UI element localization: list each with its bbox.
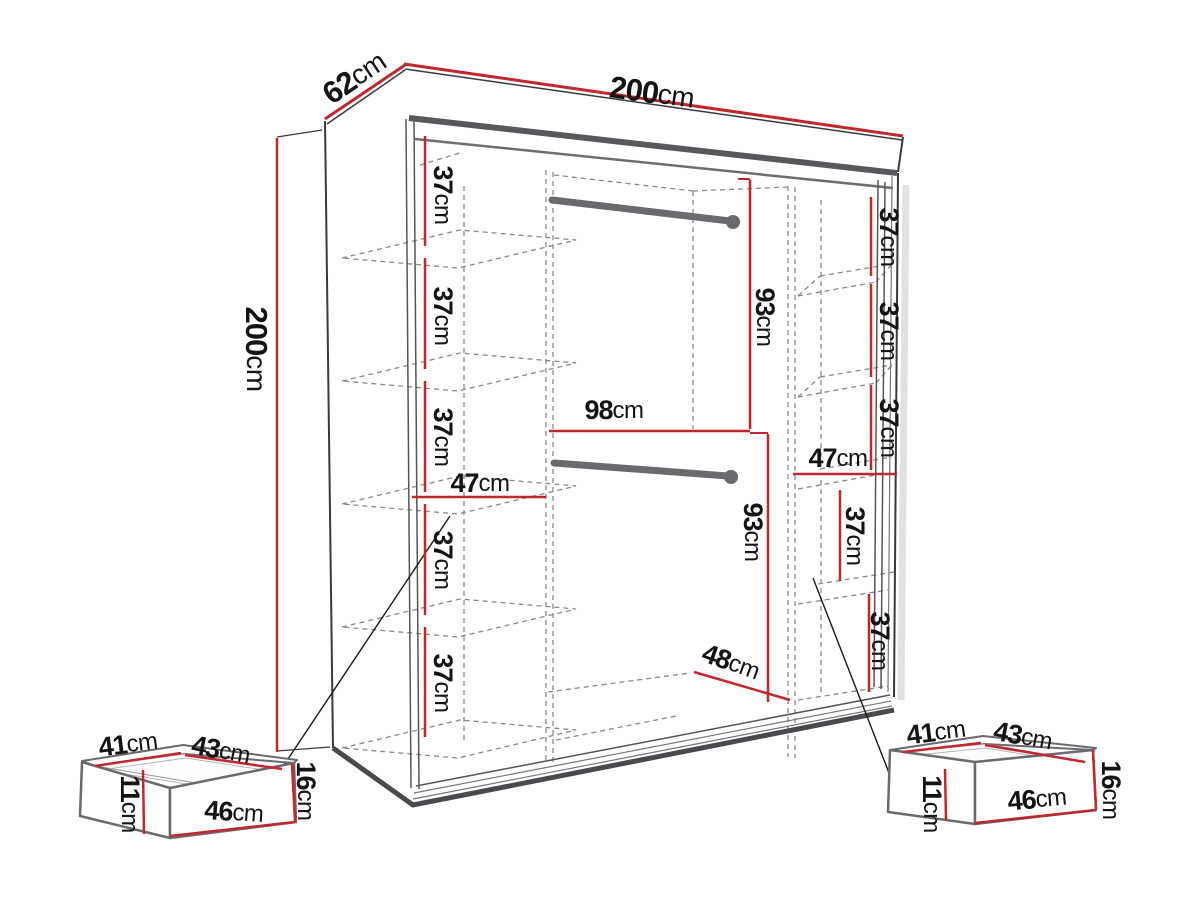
label-left-drawer-11: 11cm [115, 775, 145, 833]
left-outer-edge [325, 121, 333, 748]
label-left-gap-3: 37cm [428, 407, 458, 466]
label-right-lower-gap-2: 37cm [865, 611, 895, 670]
label-93-lower: 93cm [738, 502, 768, 561]
right-drawer-pointer [813, 578, 891, 778]
label-left-drawer-16: 16cm [291, 761, 321, 820]
label-48: 48cm [698, 638, 764, 686]
label-right-gap-1: 37cm [874, 207, 904, 266]
label-left-drawer-46: 46cm [204, 795, 265, 829]
drawer-pointer-lines [280, 516, 891, 778]
floor-front-edge [416, 695, 890, 786]
label-height-200: 200cm [240, 306, 275, 391]
label-left-gap-2: 37cm [428, 286, 458, 345]
label-right-drawer-11: 11cm [917, 775, 947, 833]
label-right-gap-3: 37cm [874, 398, 904, 457]
label-93-upper: 93cm [750, 287, 780, 346]
label-left-gap-4: 37cm [428, 530, 458, 589]
left-shelf-2 [342, 353, 576, 391]
label-98: 98cm [584, 395, 643, 425]
label-right-47: 47cm [808, 443, 867, 473]
wardrobe-dimension-diagram: 200cm 62cm 200cm 37cm 37cm 37cm 37cm 37c… [0, 0, 1200, 899]
label-left-gap-1: 37cm [428, 165, 458, 224]
label-right-gap-2: 37cm [874, 301, 904, 360]
label-left-47: 47cm [450, 468, 509, 498]
label-width-200: 200cm [607, 69, 696, 115]
lower-hanging-rail [554, 463, 738, 484]
bottom-thick-edge [333, 710, 894, 805]
diagram-canvas: 200cm 62cm 200cm 37cm 37cm 37cm 37cm 37c… [0, 0, 1200, 899]
upper-hanging-rail [552, 200, 740, 229]
left-shelf-4 [342, 599, 576, 637]
dimension-labels: 200cm 62cm 200cm 37cm 37cm 37cm 37cm 37c… [97, 43, 1126, 833]
label-right-lower-gap-1: 37cm [840, 506, 870, 565]
left-shelf-1 [342, 230, 576, 268]
left-shelf-floor [342, 720, 576, 758]
label-right-drawer-16: 16cm [1096, 760, 1126, 819]
label-left-gap-5: 37cm [428, 653, 458, 712]
